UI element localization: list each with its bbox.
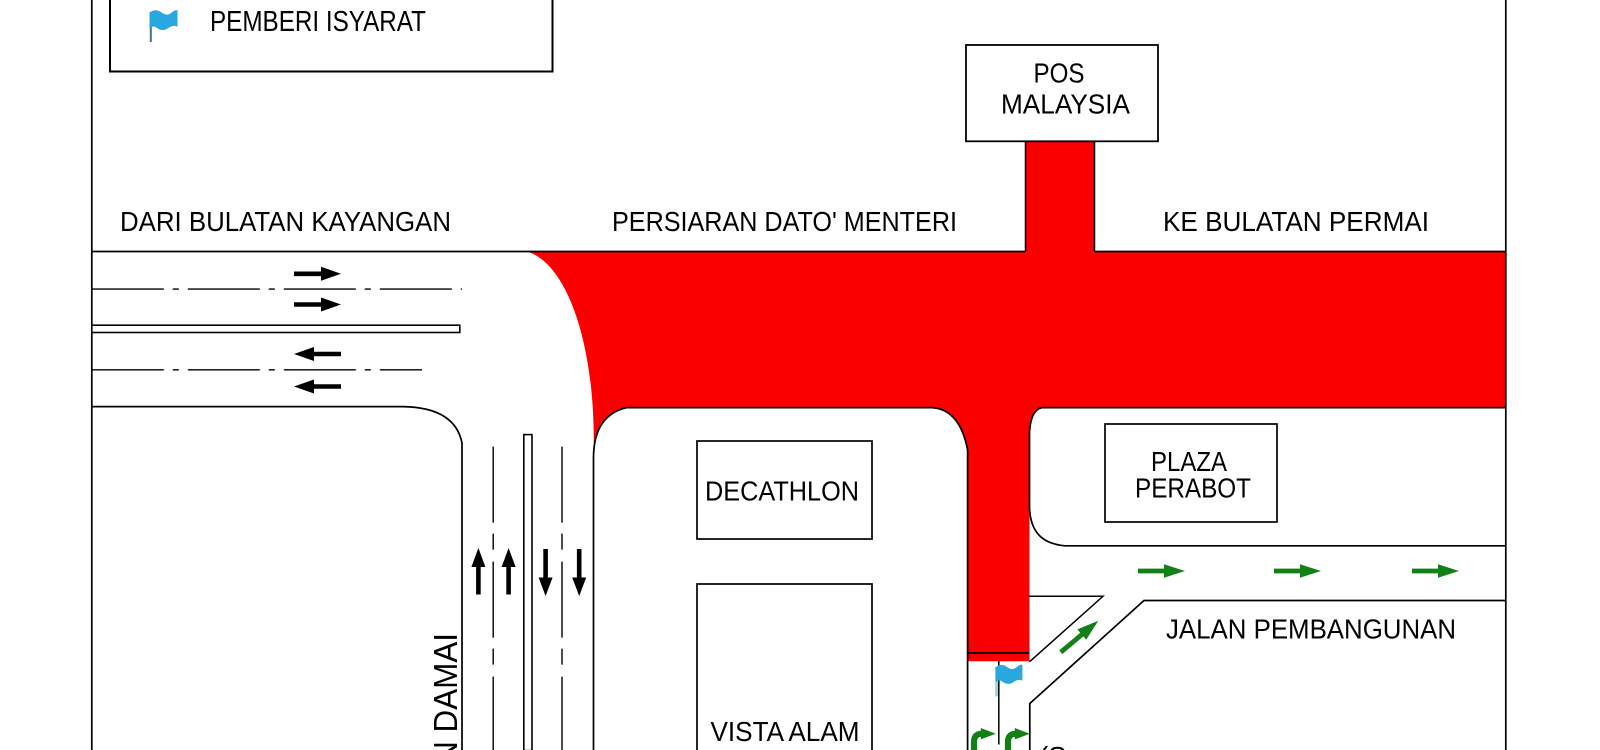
svg-text:VISTA ALAM: VISTA ALAM xyxy=(711,716,860,747)
svg-text:MALAYSIA: MALAYSIA xyxy=(1001,88,1131,119)
svg-text:DARI BULATAN KAYANGAN: DARI BULATAN KAYANGAN xyxy=(120,206,451,237)
svg-text:KE BULATAN PERMAI: KE BULATAN PERMAI xyxy=(1163,206,1429,237)
svg-text:JALAN PEMBANGUNAN: JALAN PEMBANGUNAN xyxy=(1166,614,1456,645)
svg-text:PERSIARAN DATO' MENTERI: PERSIARAN DATO' MENTERI xyxy=(612,206,957,237)
svg-text:PERABOT: PERABOT xyxy=(1135,473,1251,504)
svg-text:PEMBERI ISYARAT: PEMBERI ISYARAT xyxy=(210,6,426,38)
svg-text:(S: (S xyxy=(1039,741,1067,750)
svg-text:JALAN DAMAI: JALAN DAMAI xyxy=(427,633,464,750)
svg-text:POS: POS xyxy=(1034,58,1085,89)
svg-text:DECATHLON: DECATHLON xyxy=(705,476,859,507)
